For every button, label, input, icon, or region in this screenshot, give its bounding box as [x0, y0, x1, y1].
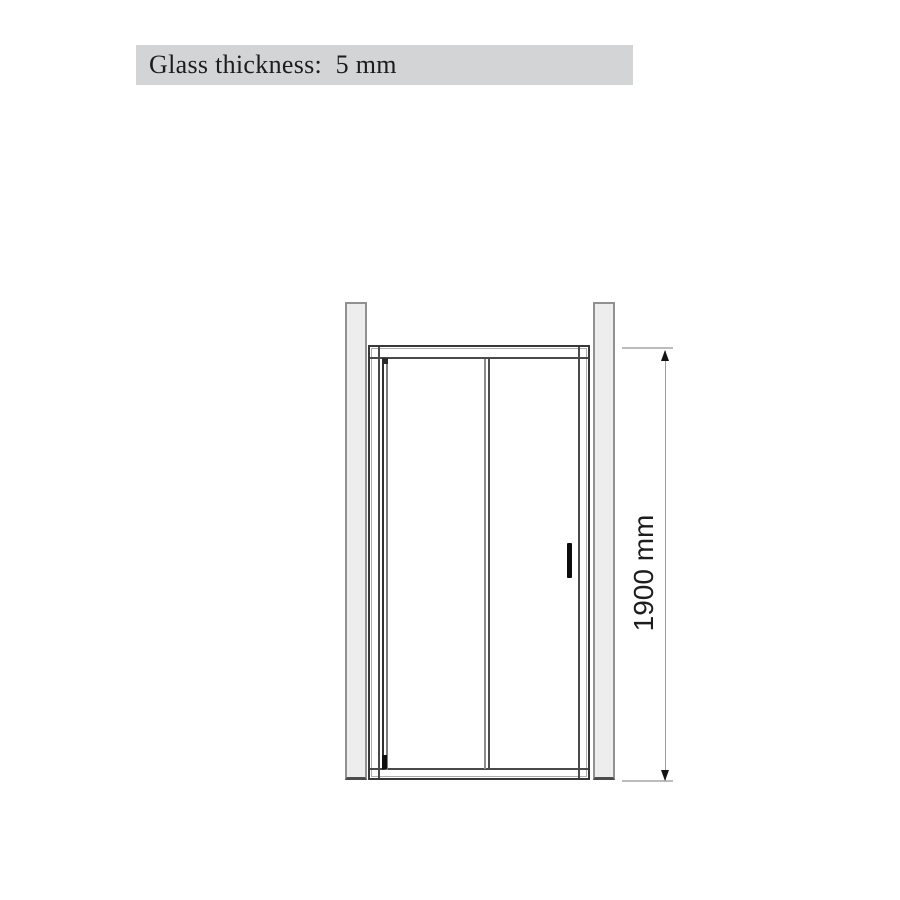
- fixed-panel-edge-line-dark: [382, 359, 384, 770]
- right-stile-inner-edge: [578, 347, 580, 778]
- height-dimension-line: [665, 351, 667, 780]
- panel-guide-block-bottom: [382, 755, 388, 769]
- height-dimension-label: 1900 mm: [628, 515, 660, 632]
- bottom-rail-inner-edge: [370, 768, 588, 770]
- right-wall-profile: [593, 302, 615, 780]
- shower-door-diagram: Glass thickness: 5 mm 1900 mm: [0, 0, 900, 900]
- center-panel-edge-line-dark: [488, 359, 490, 769]
- door-handle: [567, 543, 572, 578]
- top-rail-inner-edge: [370, 357, 588, 359]
- dimension-arrow-down-icon: [661, 770, 669, 781]
- dimension-arrow-up-icon: [661, 350, 669, 361]
- door-frame-outline: [368, 345, 590, 780]
- glass-thickness-banner: Glass thickness: 5 mm: [136, 45, 633, 85]
- panel-guide-block-top: [382, 358, 388, 364]
- center-panel-edge-line-light: [484, 359, 486, 769]
- fixed-panel-edge-line-light: [386, 359, 388, 770]
- glass-thickness-label: Glass thickness: 5 mm: [149, 50, 397, 80]
- left-stile-inner-edge: [378, 347, 380, 778]
- door-frame-inner-line: [371, 348, 587, 777]
- left-wall-profile: [345, 302, 367, 780]
